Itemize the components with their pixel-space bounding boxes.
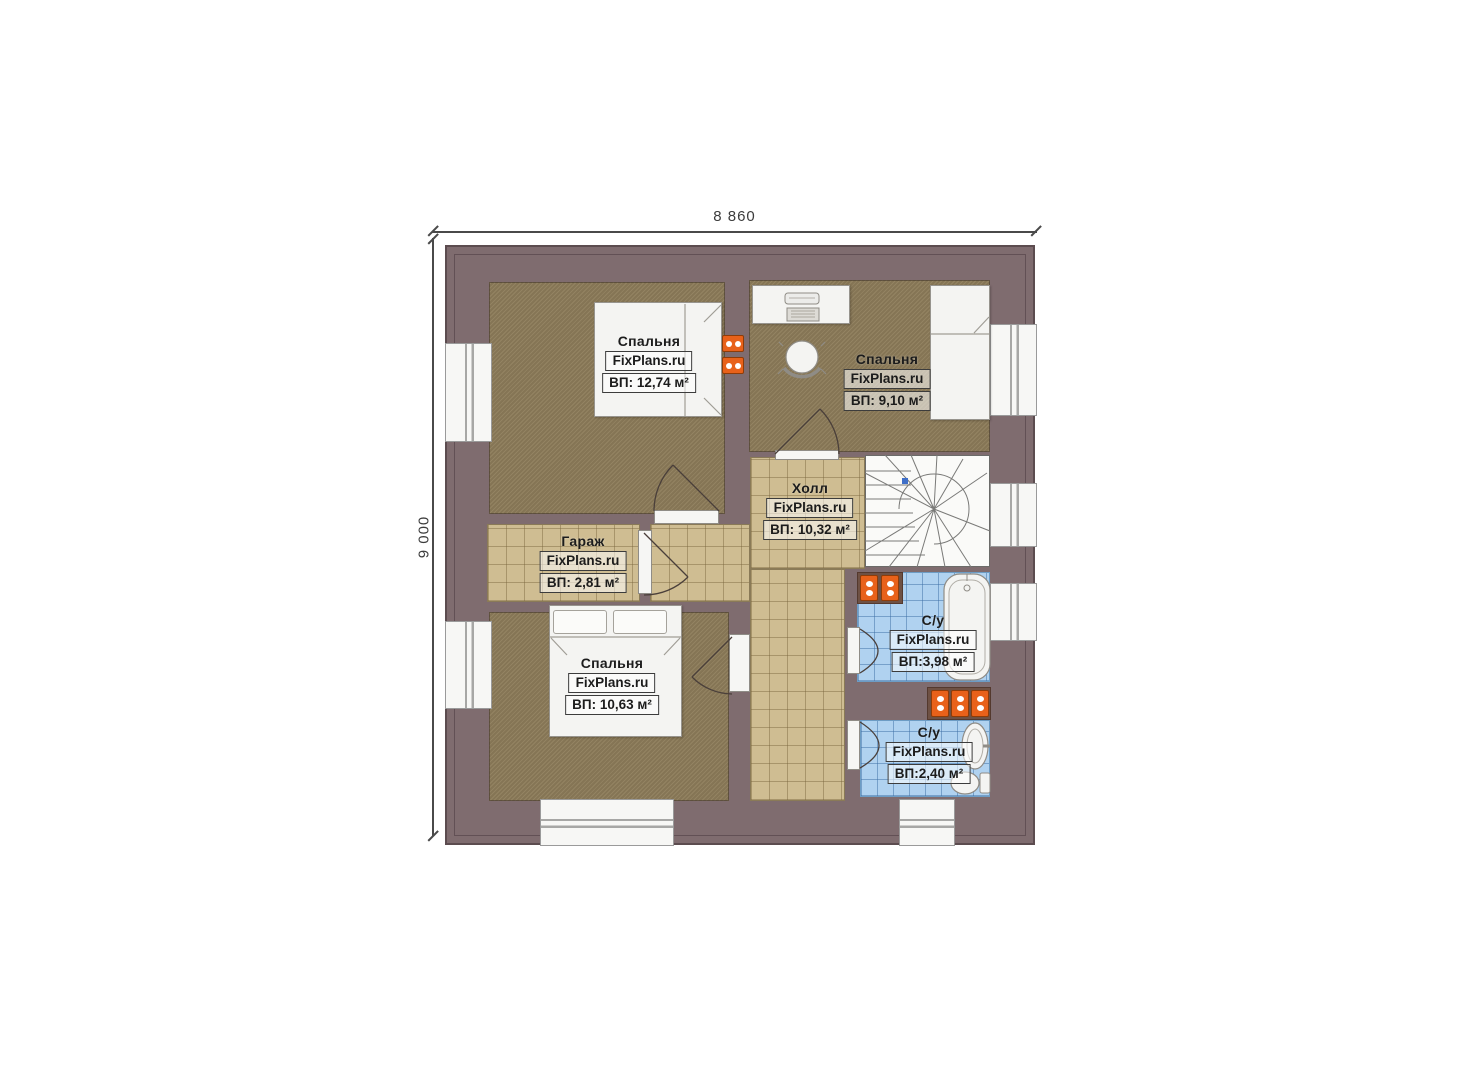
window-bottom-1 — [540, 799, 674, 846]
dimension-top-line — [432, 231, 1037, 233]
room-name: С/у — [918, 724, 941, 740]
room-name: Спальня — [581, 655, 644, 671]
area-label: ВП:3,98 м² — [892, 652, 974, 672]
dimension-left-label: 9 000 — [416, 516, 433, 559]
area-label: ВП: 10,63 м² — [565, 695, 659, 715]
radiator-icon — [722, 335, 744, 352]
pillow-icon — [613, 610, 667, 634]
floor-plan: Спальня FixPlans.ru ВП: 12,74 м² Спальня… — [445, 245, 1035, 845]
room-label-bedroom-bottom-left: Спальня FixPlans.ru ВП: 10,63 м² — [565, 655, 659, 715]
radiator-icon — [951, 690, 969, 717]
room-label-bathroom-upper: С/у FixPlans.ru ВП:3,98 м² — [890, 612, 977, 672]
desk-icon — [752, 285, 850, 324]
door-bathroom-upper — [847, 627, 860, 674]
brand-label: FixPlans.ru — [569, 673, 656, 693]
room-label-bedroom-top-left: Спальня FixPlans.ru ВП: 12,74 м² — [602, 333, 696, 393]
brand-label: FixPlans.ru — [606, 351, 693, 371]
window-right-1 — [990, 324, 1037, 416]
room-label-bedroom-top-right: Спальня FixPlans.ru ВП: 9,10 м² — [844, 351, 931, 411]
door-bedroom-top-right — [775, 450, 839, 460]
pillow-icon — [553, 610, 607, 634]
radiator-icon — [931, 690, 949, 717]
door-bedroom-top-left — [654, 510, 719, 524]
area-label: ВП: 9,10 м² — [844, 391, 930, 411]
radiator-icon — [971, 690, 989, 717]
radiator-icon — [860, 575, 878, 601]
window-left-2 — [445, 621, 492, 709]
area-label: ВП:2,40 м² — [888, 764, 970, 784]
room-name: Холл — [792, 480, 828, 496]
room-name: Спальня — [618, 333, 681, 349]
room-name: Спальня — [856, 351, 919, 367]
radiator-icon — [881, 575, 899, 601]
brand-label: FixPlans.ru — [844, 369, 931, 389]
window-bottom-2 — [899, 799, 955, 846]
door-bedroom-bottom-left — [729, 634, 750, 692]
room-label-hall: Холл FixPlans.ru ВП: 10,32 м² — [763, 480, 857, 540]
area-label: ВП: 12,74 м² — [602, 373, 696, 393]
dimension-top-label: 8 860 — [432, 208, 1037, 225]
window-right-3 — [990, 583, 1037, 641]
window-right-2 — [990, 483, 1037, 547]
room-label-bathroom-lower: С/у FixPlans.ru ВП:2,40 м² — [886, 724, 973, 784]
floor-corridor — [650, 524, 750, 602]
single-bed-icon — [930, 285, 990, 420]
area-label: ВП: 2,81 м² — [540, 573, 626, 593]
brand-label: FixPlans.ru — [886, 742, 973, 762]
door-bathroom-lower — [847, 720, 860, 770]
room-label-garage: Гараж FixPlans.ru ВП: 2,81 м² — [540, 533, 627, 593]
floor-hall-lower — [750, 569, 845, 801]
radiator-icon — [722, 357, 744, 374]
brand-label: FixPlans.ru — [767, 498, 854, 518]
room-name: Гараж — [561, 533, 604, 549]
room-name: С/у — [922, 612, 945, 628]
window-left-1 — [445, 343, 492, 442]
staircase — [865, 455, 990, 567]
brand-label: FixPlans.ru — [890, 630, 977, 650]
area-label: ВП: 10,32 м² — [763, 520, 857, 540]
door-garage — [638, 530, 652, 594]
brand-label: FixPlans.ru — [540, 551, 627, 571]
floor-plan-page: 8 860 9 000 — [0, 0, 1474, 1080]
